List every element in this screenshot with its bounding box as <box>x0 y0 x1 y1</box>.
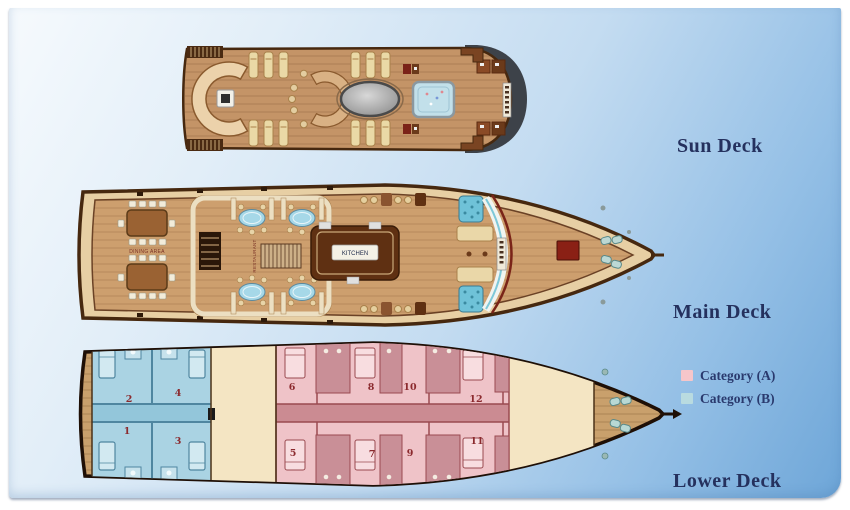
restaurant-label: RESTAURANT <box>252 239 257 272</box>
dining-area-label: DINING AREA <box>129 249 165 255</box>
vertical-label-strip <box>503 83 511 117</box>
stern-ladder-top <box>187 46 223 58</box>
cabin-6-number: 6 <box>289 382 296 393</box>
main-deck-label: Main Deck <box>673 301 771 324</box>
cabin-2-number: 2 <box>126 394 133 405</box>
legend-row-category-b: Category (B) <box>681 387 775 410</box>
cabin-12-number: 12 <box>469 394 482 405</box>
vertical-label-strip <box>497 238 506 270</box>
cabin-4-number: 4 <box>175 388 182 399</box>
deck-plan-image: DINING AREA <box>0 0 850 510</box>
cabin-7-number: 7 <box>369 449 376 460</box>
category-a-swatch <box>681 370 693 381</box>
cabin-3-number: 3 <box>175 436 182 447</box>
cabin-8-number: 8 <box>368 382 375 393</box>
service-block-aft <box>211 343 276 485</box>
lower-deck-label: Lower Deck <box>673 470 782 493</box>
cabin-1-number: 1 <box>124 426 131 437</box>
sun-deck-plan <box>165 36 537 162</box>
main-deck-plan: DINING AREA <box>65 180 665 330</box>
service-block-fore <box>509 343 594 485</box>
bow-hatch <box>557 241 579 260</box>
cabin-5-number: 5 <box>290 448 297 459</box>
sun-deck-label: Sun Deck <box>677 135 763 158</box>
category-b-swatch <box>681 393 693 404</box>
cabin-9-number: 9 <box>407 448 414 459</box>
bowsprit-tip <box>673 409 682 419</box>
legend-row-category-a: Category (A) <box>681 364 775 387</box>
side-stairs <box>199 232 221 270</box>
category-legend: Category (A) Category (B) <box>681 364 775 410</box>
bar-console-screen <box>221 94 230 103</box>
category-a-cabins <box>276 343 509 485</box>
skylight-oval <box>341 82 399 116</box>
kitchen-label: KITCHEN <box>342 251 368 257</box>
cabin-11-number: 11 <box>470 436 483 447</box>
lower-deck-plan: 2 4 1 3 6 8 10 12 5 7 9 11 <box>63 338 685 490</box>
stern-ladder-bottom <box>187 139 223 151</box>
jacuzzi <box>413 82 454 117</box>
central-stairs <box>261 244 301 268</box>
category-b-cabins <box>92 343 211 485</box>
cabin-10-number: 10 <box>403 382 417 393</box>
category-a-label: Category (A) <box>700 368 775 384</box>
kitchen-block: KITCHEN <box>311 222 399 284</box>
category-b-label: Category (B) <box>700 391 775 407</box>
deck-plan-panel: DINING AREA <box>9 8 841 498</box>
